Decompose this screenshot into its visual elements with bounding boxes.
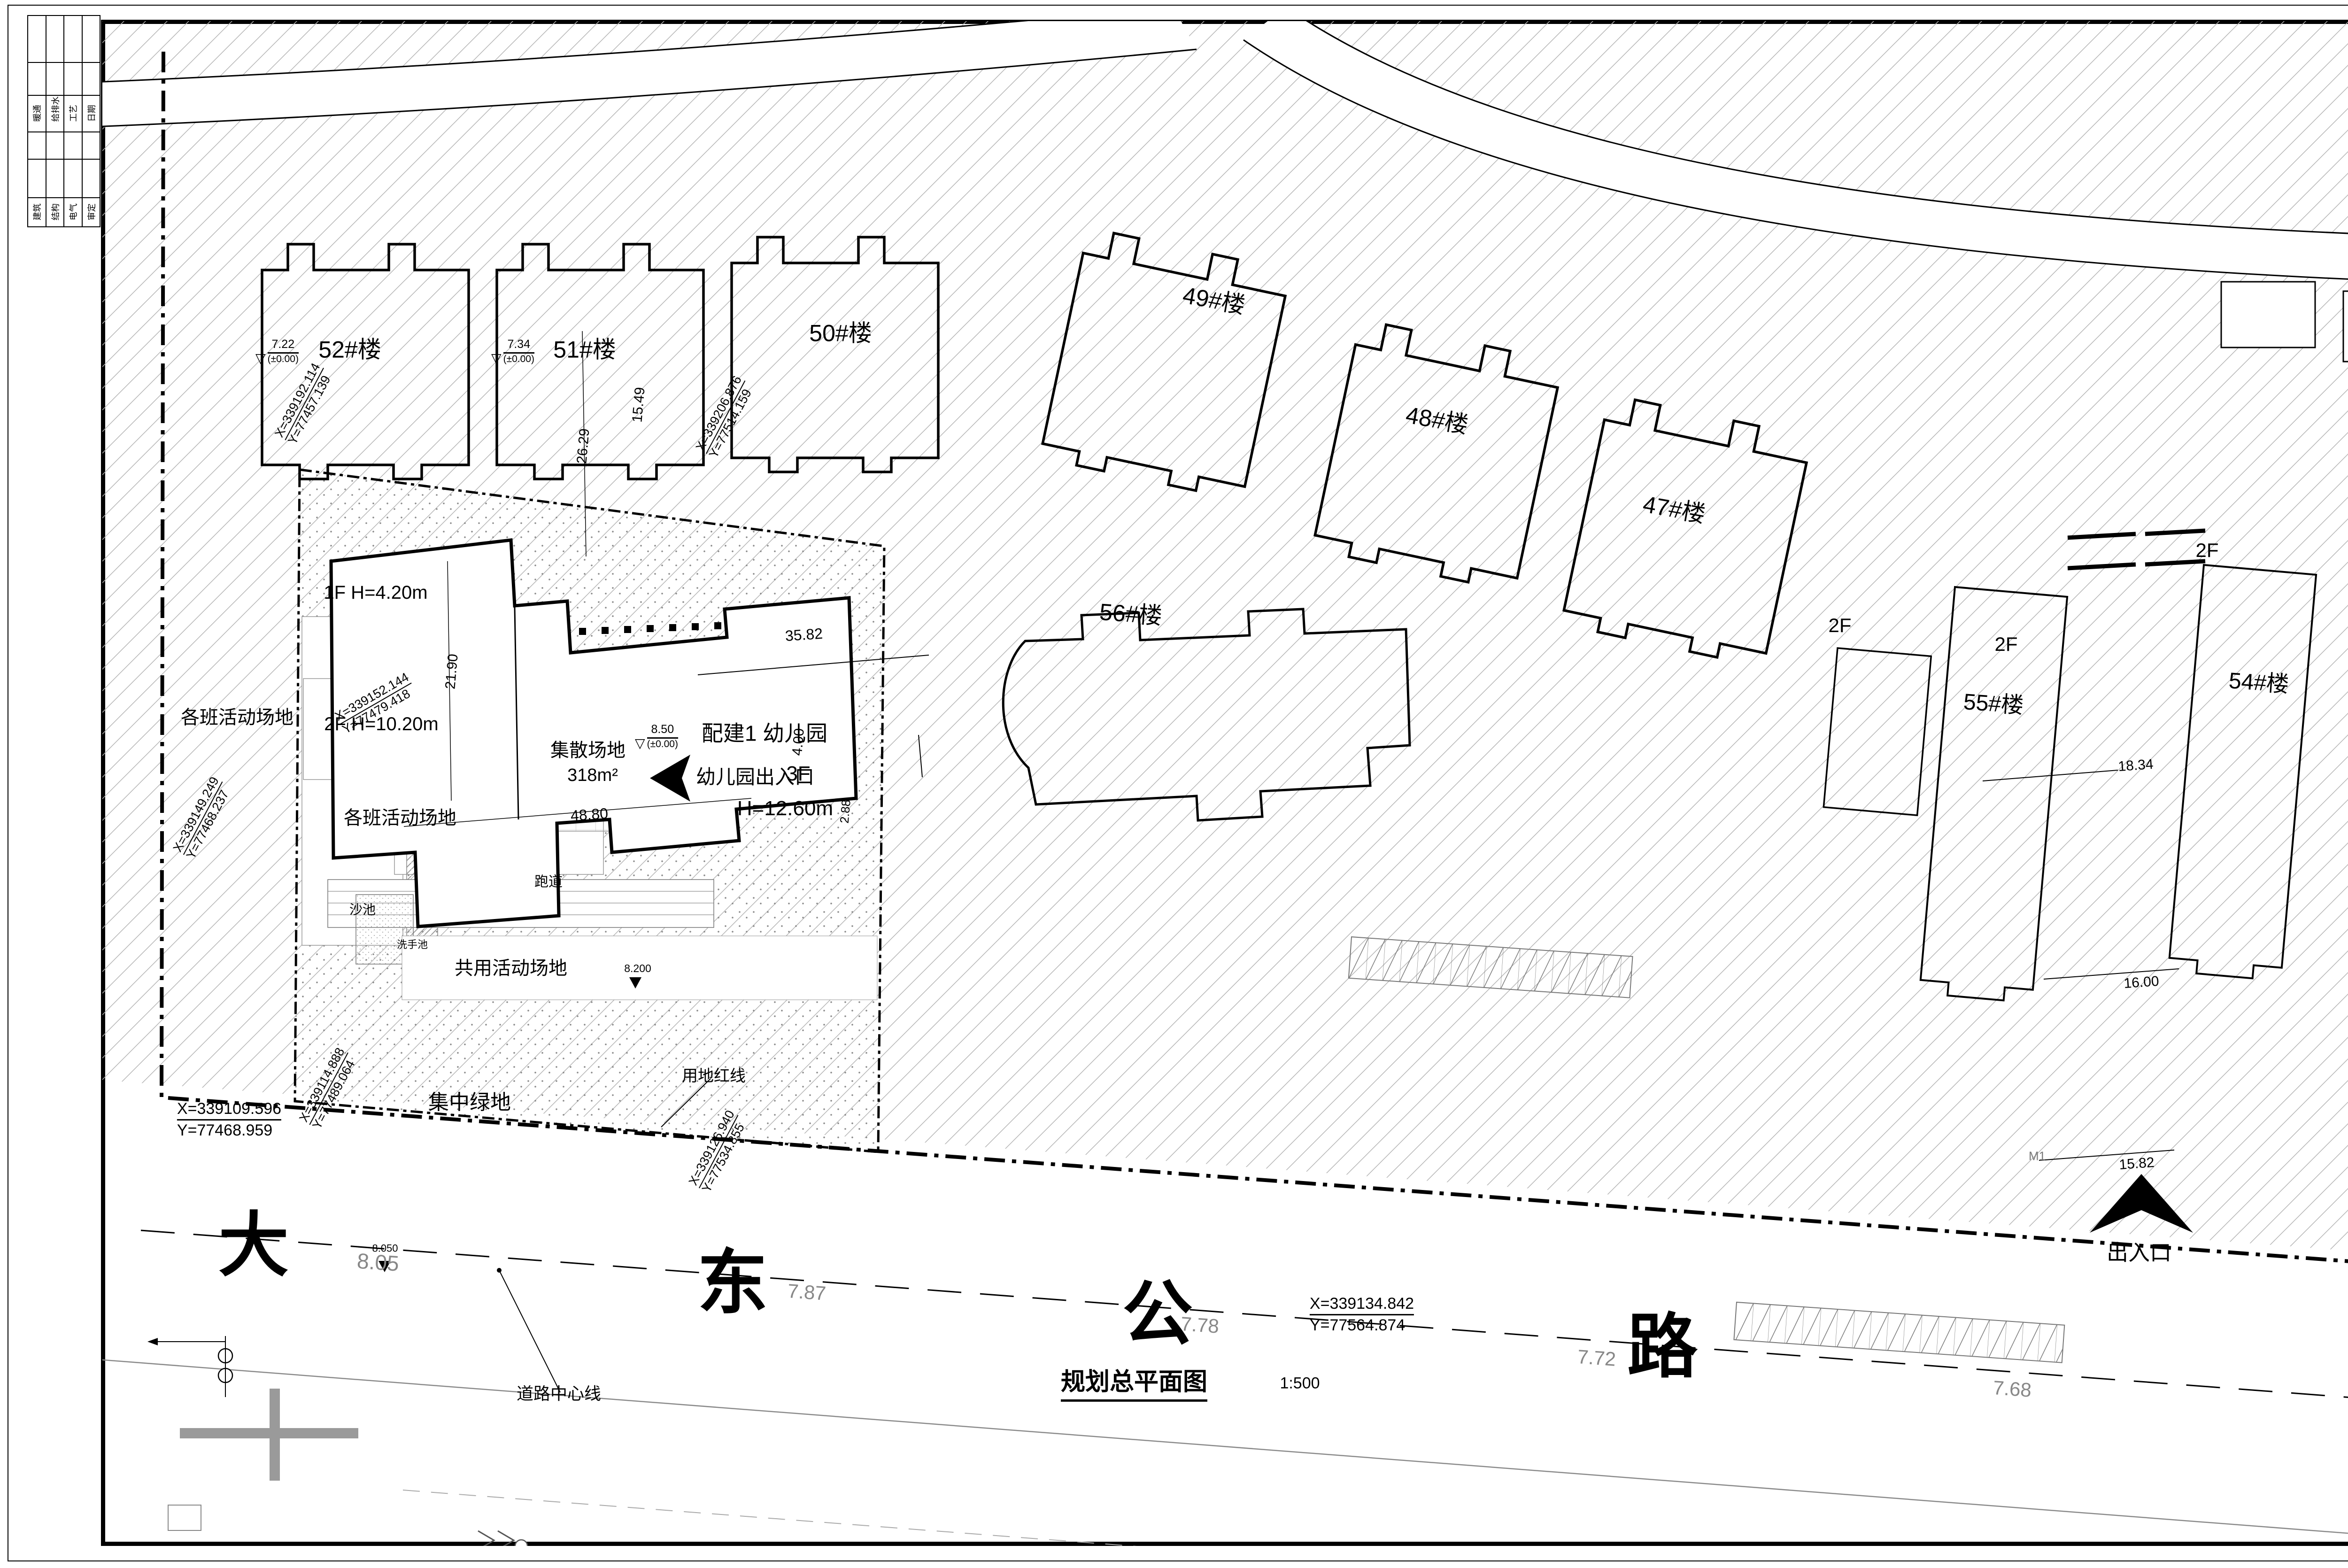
elevation-triangle-icon: ▽ [255, 352, 266, 365]
sign-cell [64, 132, 82, 159]
sign-cell [46, 132, 64, 159]
dim-label: 48.80 [570, 805, 609, 825]
sign-label: 电气 [67, 204, 79, 221]
sign-label: 日期 [85, 106, 97, 122]
road-centerline-label: 道路中心线 [517, 1384, 601, 1403]
level-marker-kg: ▽ 8.50(±0.00) [635, 723, 678, 750]
sign-cell [64, 159, 82, 198]
kindergarten-wing-1f: 1F H=4.20m [324, 582, 427, 603]
level-base: (±0.00) [647, 739, 678, 750]
walk-level: 8.200 [624, 963, 651, 974]
dim-label: 15.82 [2118, 1155, 2155, 1173]
sign-cell [28, 15, 46, 62]
elevation-triangle-icon: ▽ [491, 352, 502, 365]
sign-cell: 结构 [46, 198, 64, 227]
signature-table: 暖通 给排水 工艺 日期 建筑 结构 电气 审定 [27, 15, 100, 227]
road-elevation: 7.87 [787, 1280, 827, 1305]
road-elevation: 7.78 [1180, 1313, 1220, 1337]
sign-cell [46, 159, 64, 198]
gate-tag: M1 [2029, 1150, 2046, 1163]
sign-label: 审定 [85, 204, 97, 221]
area-label: 集散场地 [550, 740, 626, 761]
drawing-sheet: 暖通 给排水 工艺 日期 建筑 结构 电气 审定 [0, 0, 2348, 1568]
sign-label: 建筑 [31, 204, 43, 221]
dim-label: 26.29 [574, 428, 592, 464]
redline-label: 用地红线 [682, 1067, 746, 1085]
kindergarten-name: 配建1 幼儿园 [702, 722, 827, 746]
sign-cell: 建筑 [28, 198, 46, 227]
dim-label: 16.00 [2123, 973, 2159, 991]
sign-label: 暖通 [31, 106, 43, 122]
building-label: 52#楼 [318, 337, 381, 363]
floor-tag: 2F [1994, 633, 2017, 655]
sign-label: 给排水 [49, 106, 61, 122]
coord-label: X=339134.842 Y=77564.874 [1310, 1295, 1414, 1335]
dim-label: 21.90 [442, 653, 461, 690]
area-label: 跑道 [534, 874, 563, 890]
level-base: (±0.00) [268, 354, 299, 365]
area-value: 318m² [567, 766, 618, 786]
coord-x: X=339134.842 [1310, 1295, 1414, 1315]
sign-cell [64, 62, 82, 95]
sign-cell [82, 15, 100, 62]
dim-label: 4.00 [789, 727, 807, 756]
dim-label: 18.34 [2117, 757, 2154, 774]
coord-y: Y=77564.874 [1310, 1316, 1414, 1335]
area-label: 沙池 [349, 903, 376, 918]
area-label: 共用活动场地 [455, 958, 567, 979]
sign-cell: 电气 [64, 198, 82, 227]
road-name-char: 大 [218, 1207, 289, 1284]
road-elevation: 7.68 [1993, 1377, 2032, 1401]
dim-label: 15.49 [629, 386, 648, 423]
dim-label: 35.82 [785, 626, 823, 645]
sign-cell [82, 159, 100, 198]
sign-cell [28, 132, 46, 159]
building-label: 51#楼 [553, 337, 616, 363]
dim-label: 2.88 [838, 799, 853, 824]
building-label: 56#楼 [1099, 599, 1163, 629]
sign-cell [28, 62, 46, 95]
road-elevation: 8.05 [356, 1249, 400, 1276]
sign-cell: 工艺 [64, 95, 82, 132]
level-value: 8.50 [647, 723, 678, 739]
site-plan-drawing [102, 21, 2348, 1546]
level-marker-52: ▽ 7.22(±0.00) [255, 338, 299, 365]
sign-cell [82, 132, 100, 159]
area-label: 各班活动场地 [344, 808, 456, 828]
level-value: 7.34 [503, 338, 534, 354]
sign-cell: 日期 [82, 95, 100, 132]
sign-cell: 给排水 [46, 95, 64, 132]
sign-cell [82, 62, 100, 95]
level-base: (±0.00) [503, 354, 534, 365]
sign-cell [46, 62, 64, 95]
kindergarten-height: H=12.60m [737, 797, 833, 820]
coord-y: Y=77468.959 [177, 1121, 281, 1140]
floor-tag: 2F [2195, 540, 2218, 561]
building-label: 50#楼 [809, 321, 872, 347]
coord-x: X=339109.596 [177, 1100, 281, 1120]
area-label: 各班活动场地 [181, 707, 293, 728]
kindergarten-entrance-label: 幼儿园出入口 [696, 766, 814, 788]
sign-cell: 审定 [82, 198, 100, 227]
plan-scale: 1:500 [1280, 1375, 1320, 1392]
sign-label: 工艺 [67, 106, 79, 122]
road-elevation: 7.72 [1577, 1346, 1617, 1370]
elevation-triangle-icon: ▽ [635, 737, 645, 750]
sign-cell [64, 15, 82, 62]
building-label: 55#楼 [1962, 690, 2024, 719]
building-label: 54#楼 [2228, 669, 2289, 698]
level-value: 7.22 [268, 338, 299, 354]
level-marker-51: ▽ 7.34(±0.00) [491, 338, 534, 365]
road-name-char: 路 [1627, 1308, 1698, 1386]
plan-title: 规划总平面图 [1061, 1369, 1207, 1402]
road-name-char: 东 [697, 1244, 768, 1322]
sign-label: 结构 [49, 204, 61, 221]
coord-label: X=339109.596 Y=77468.959 [177, 1100, 281, 1140]
site-entrance-label: 出入口 [2107, 1241, 2171, 1265]
level-value: 8.200 [624, 963, 651, 974]
area-label: 集中绿地 [428, 1091, 511, 1114]
sign-cell: 暖通 [28, 95, 46, 132]
sign-cell [28, 159, 46, 198]
area-label: 洗手池 [397, 939, 428, 950]
floor-tag: 2F [1828, 615, 1851, 636]
signature-strip: 暖通 给排水 工艺 日期 建筑 结构 电气 审定 [27, 15, 100, 227]
sign-cell [46, 15, 64, 62]
